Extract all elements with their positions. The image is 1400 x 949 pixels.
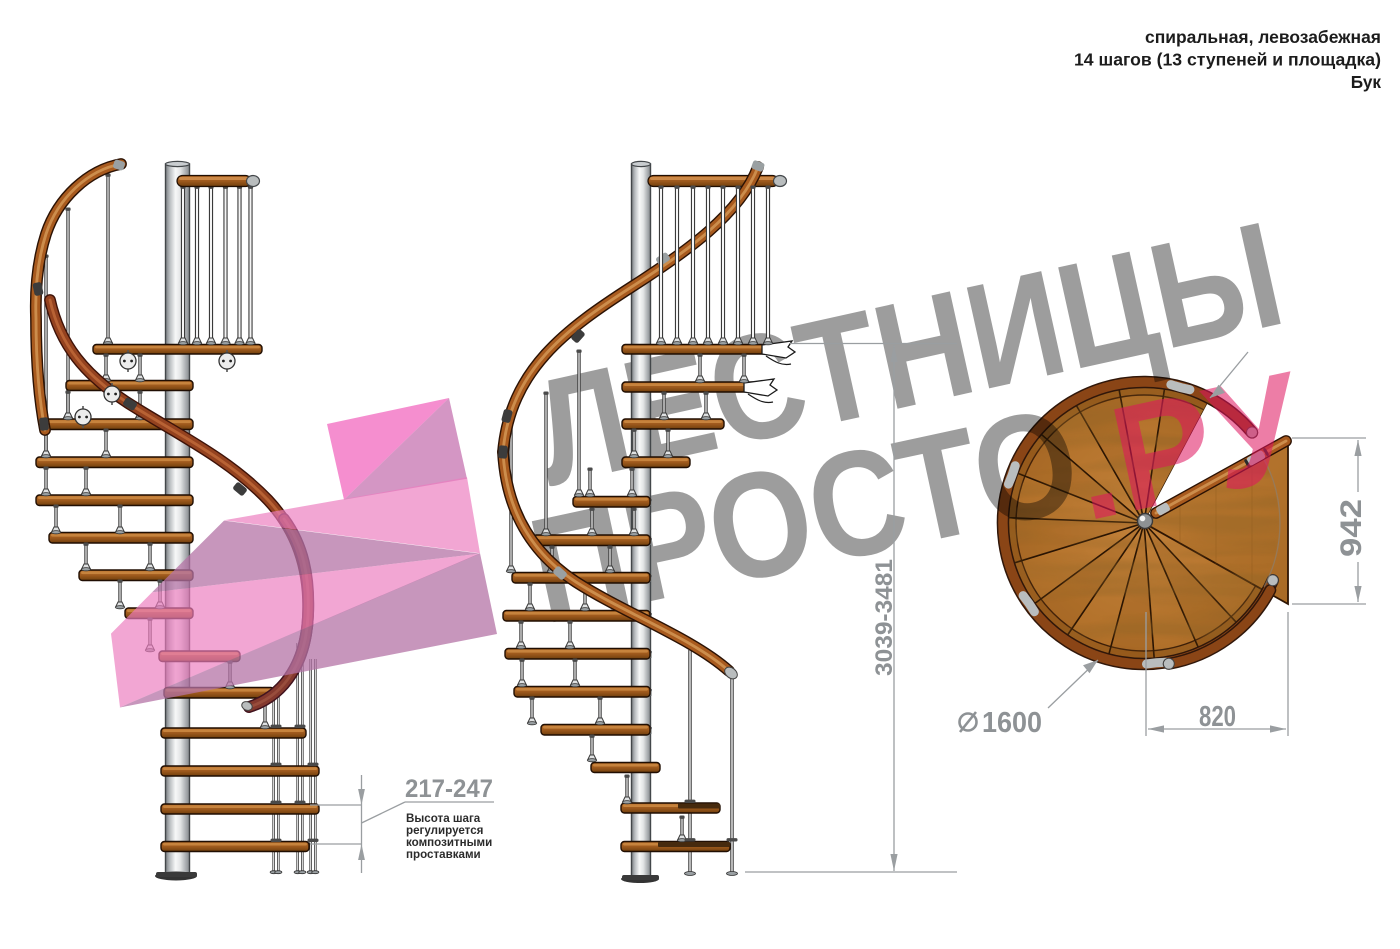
svg-text:942: 942: [1335, 499, 1368, 557]
svg-text:спиральная, левозабежная: спиральная, левозабежная: [1145, 27, 1381, 47]
svg-text:217-247: 217-247: [405, 775, 493, 803]
svg-text:проставками: проставками: [406, 848, 481, 861]
svg-text:820: 820: [1199, 701, 1236, 733]
svg-text:3039-3481: 3039-3481: [871, 559, 898, 676]
svg-text:Бук: Бук: [1351, 72, 1382, 92]
svg-text:14 шагов (13 ступеней и площад: 14 шагов (13 ступеней и площадка): [1074, 50, 1381, 70]
svg-text:1600: 1600: [982, 707, 1042, 739]
